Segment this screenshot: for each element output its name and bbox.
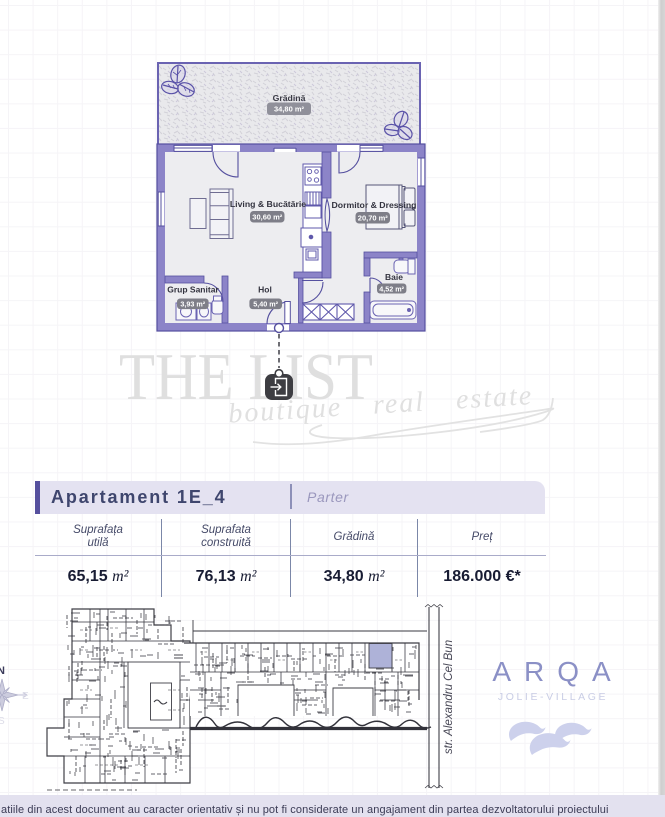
svg-text:Grădină: Grădină	[273, 93, 306, 103]
svg-text:E: E	[22, 691, 29, 702]
svg-text:20,70 m²: 20,70 m²	[358, 214, 389, 223]
svg-text:30,60 m²: 30,60 m²	[252, 213, 283, 222]
svg-text:JOLIE-VILLAGE: JOLIE-VILLAGE	[498, 691, 608, 703]
svg-text:34,80 m²: 34,80 m²	[274, 105, 305, 114]
svg-text:Grup Sanitar: Grup Sanitar	[167, 285, 219, 295]
svg-text:ARQA: ARQA	[492, 656, 623, 687]
svg-text:Dormitor & Dressing: Dormitor & Dressing	[332, 200, 417, 210]
svg-text:S: S	[0, 716, 5, 727]
svg-text:Hol: Hol	[258, 285, 272, 295]
svg-text:N: N	[0, 665, 5, 677]
svg-text:Baie: Baie	[385, 272, 403, 282]
svg-text:3,93 m²: 3,93 m²	[180, 300, 205, 309]
svg-text:str. Alexandru Cel Bun: str. Alexandru Cel Bun	[443, 640, 455, 754]
svg-text:4,52 m²: 4,52 m²	[379, 284, 404, 293]
svg-text:Living & Bucătărie: Living & Bucătărie	[230, 199, 306, 209]
svg-text:5,40 m²: 5,40 m²	[253, 300, 278, 309]
